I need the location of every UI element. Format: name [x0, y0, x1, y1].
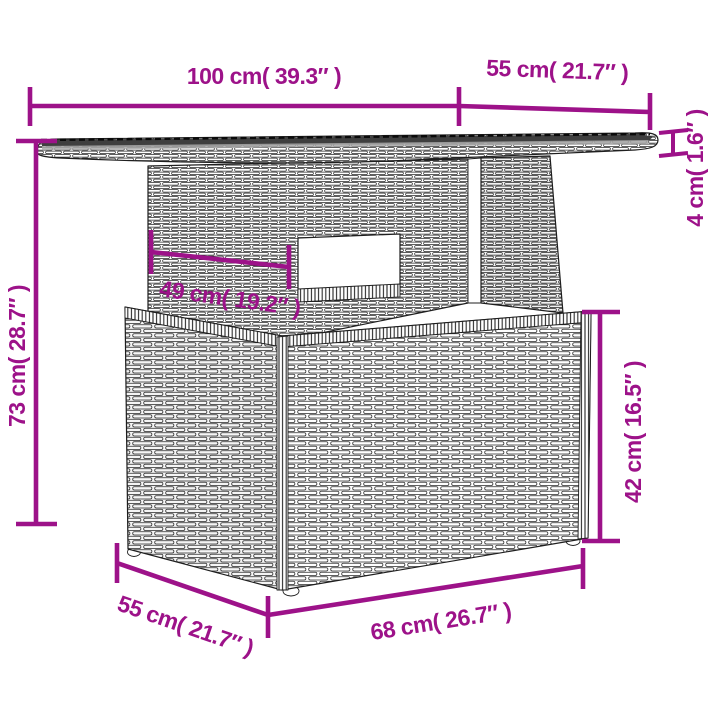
dim-tabletop-length-line — [30, 87, 459, 126]
dim-base-depth-label: 55 cm( 21.7″ ) — [114, 590, 257, 661]
base-front-corner-weave — [277, 336, 288, 590]
dim-tabletop-length-label: 100 cm( 39.3″ ) — [187, 63, 341, 89]
dim-base-height: 42 cm( 16.5″ ) — [582, 312, 646, 541]
dim-tabletop-length: 100 cm( 39.3″ ) — [30, 63, 459, 126]
dim-total-height: 73 cm( 28.7″ ) — [4, 141, 57, 524]
dim-tabletop-depth: 55 cm( 21.7″ ) — [459, 55, 650, 130]
product-dimension-diagram: 100 cm( 39.3″ ) 55 cm( 21.7″ ) 4 cm( 1.6… — [0, 0, 720, 720]
dim-total-height-label: 73 cm( 28.7″ ) — [4, 285, 30, 427]
pedestal-front-face — [148, 159, 468, 345]
diagram-canvas: 100 cm( 39.3″ ) 55 cm( 21.7″ ) 4 cm( 1.6… — [0, 0, 720, 720]
dim-tabletop-thickness-label: 4 cm( 1.6″ ) — [682, 109, 708, 227]
dim-base-width-label: 68 cm( 26.7″ ) — [369, 597, 513, 645]
table-illustration — [37, 133, 658, 596]
base-front-face — [282, 311, 591, 590]
pedestal-right-face-shade — [481, 156, 563, 313]
pedestal-gap-slit — [468, 158, 481, 303]
dim-base-height-label: 42 cm( 16.5″ ) — [620, 361, 646, 503]
dim-tabletop-thickness: 4 cm( 1.6″ ) — [659, 109, 708, 227]
dim-tabletop-depth-label: 55 cm( 21.7″ ) — [486, 55, 629, 86]
dim-tabletop-depth-line — [459, 93, 650, 130]
base-left-face-shade — [125, 307, 282, 590]
